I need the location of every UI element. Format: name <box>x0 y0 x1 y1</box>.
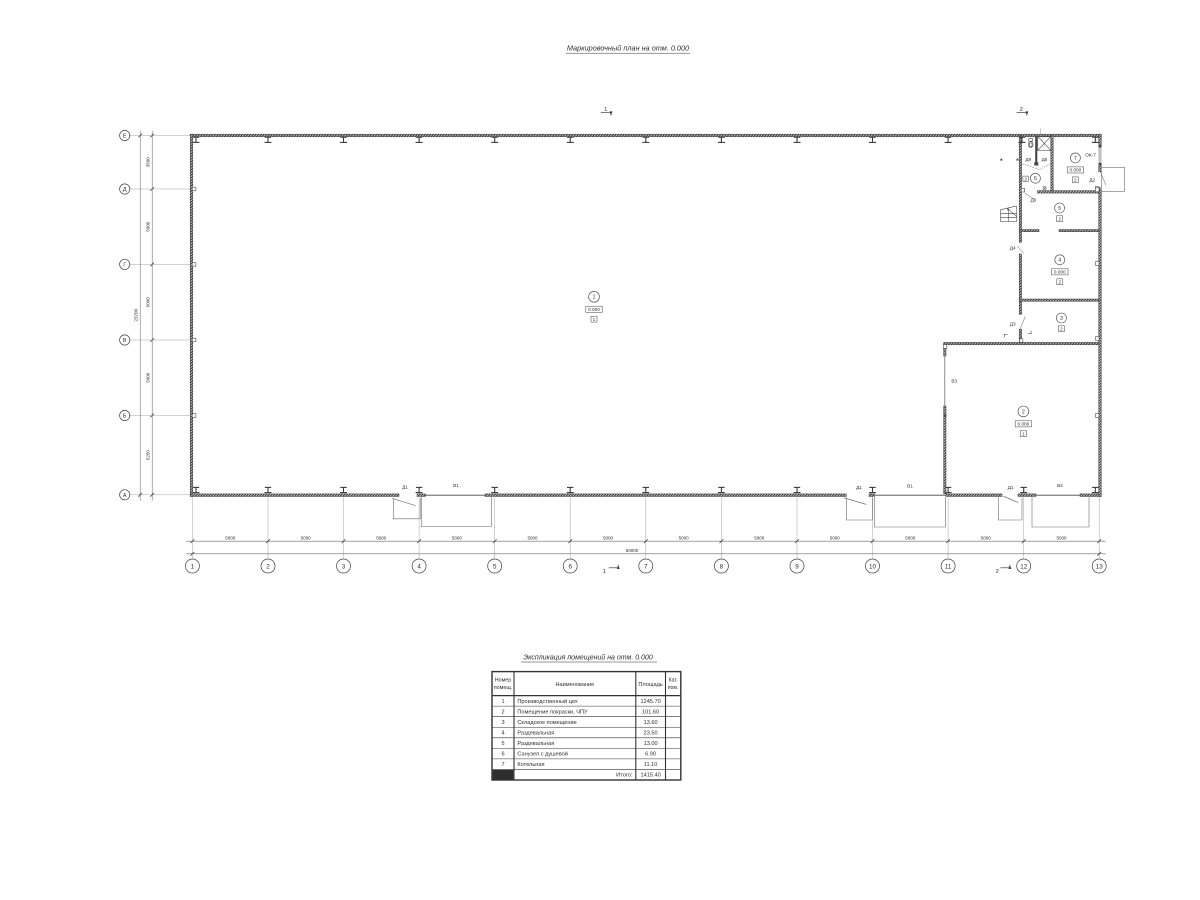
svg-text:60000: 60000 <box>626 548 639 553</box>
svg-text:5000: 5000 <box>145 221 150 232</box>
svg-text:Д8: Д8 <box>1042 157 1048 162</box>
svg-text:5000: 5000 <box>225 535 236 540</box>
svg-text:Итого:: Итого: <box>616 773 633 779</box>
svg-text:Раздевальная: Раздевальная <box>517 731 554 737</box>
svg-text:Д: Д <box>123 187 127 193</box>
svg-text:1245.70: 1245.70 <box>640 699 660 705</box>
svg-text:3500: 3500 <box>145 157 150 168</box>
svg-text:10: 10 <box>869 563 877 570</box>
svg-text:Котельная: Котельная <box>517 762 544 768</box>
svg-text:В2: В2 <box>1057 483 1063 488</box>
svg-text:1: 1 <box>593 295 596 301</box>
svg-text:Номер: Номер <box>495 678 512 684</box>
svg-text:1: 1 <box>603 569 606 575</box>
svg-text:5000: 5000 <box>145 297 150 308</box>
svg-text:2: 2 <box>1074 178 1077 183</box>
svg-text:2: 2 <box>1058 216 1061 221</box>
svg-text:5000: 5000 <box>452 535 463 540</box>
svg-text:4: 4 <box>417 563 421 570</box>
svg-text:13.60: 13.60 <box>644 720 658 726</box>
svg-text:1415.40: 1415.40 <box>640 773 660 779</box>
svg-text:5000: 5000 <box>679 535 690 540</box>
svg-text:Складское помещение: Складское помещение <box>517 720 576 726</box>
svg-text:2: 2 <box>996 569 999 575</box>
svg-text:1: 1 <box>501 699 504 705</box>
svg-text:6: 6 <box>1034 176 1037 182</box>
svg-text:5000: 5000 <box>830 535 841 540</box>
svg-text:3: 3 <box>342 563 346 570</box>
svg-text:23.50: 23.50 <box>644 731 658 737</box>
svg-text:помещ.: помещ. <box>494 685 513 691</box>
svg-text:Е: Е <box>123 134 127 140</box>
svg-text:Кат.: Кат. <box>669 678 678 684</box>
svg-text:Санузел с душевой: Санузел с душевой <box>517 751 568 758</box>
svg-text:5000: 5000 <box>981 535 992 540</box>
svg-text:5000: 5000 <box>1056 535 1067 540</box>
svg-text:1: 1 <box>604 107 607 113</box>
svg-text:2: 2 <box>1060 326 1063 331</box>
svg-text:Д1: Д1 <box>402 485 408 490</box>
svg-text:Наименование: Наименование <box>556 682 595 688</box>
svg-text:Б: Б <box>123 414 127 420</box>
svg-text:6.90: 6.90 <box>645 752 656 758</box>
svg-text:6: 6 <box>501 752 504 758</box>
svg-text:0.000: 0.000 <box>1018 421 1030 426</box>
svg-text:2: 2 <box>1020 107 1023 113</box>
svg-text:ОК-7: ОК-7 <box>1085 153 1096 159</box>
svg-text:Маркировочный план на отм. 0.0: Маркировочный план на отм. 0.000 <box>567 44 689 53</box>
svg-text:11: 11 <box>945 563 952 570</box>
svg-text:1: 1 <box>593 317 596 322</box>
svg-text:7: 7 <box>644 563 648 570</box>
svg-text:23700: 23700 <box>133 308 138 321</box>
svg-text:Д4: Д4 <box>1010 245 1016 250</box>
svg-text:Г: Г <box>123 262 126 268</box>
svg-text:5000: 5000 <box>603 535 614 540</box>
svg-text:8: 8 <box>720 563 724 570</box>
svg-text:2: 2 <box>1059 279 1062 284</box>
svg-text:5000: 5000 <box>145 372 150 383</box>
svg-text:7: 7 <box>1074 156 1077 162</box>
svg-text:В3: В3 <box>951 378 957 383</box>
svg-text:5000: 5000 <box>905 535 916 540</box>
svg-text:В1: В1 <box>907 483 913 488</box>
svg-text:11.10: 11.10 <box>644 762 658 768</box>
svg-text:Д6: Д6 <box>1031 198 1037 203</box>
svg-text:2: 2 <box>501 709 504 715</box>
svg-text:4: 4 <box>1058 258 1061 264</box>
svg-text:Д9: Д9 <box>1025 157 1031 162</box>
svg-text:В1: В1 <box>453 483 459 488</box>
svg-text:5: 5 <box>493 563 497 570</box>
svg-text:12: 12 <box>1020 563 1028 570</box>
svg-text:0.000: 0.000 <box>1070 168 1082 173</box>
svg-text:5000: 5000 <box>754 535 765 540</box>
svg-text:Д1: Д1 <box>1008 485 1014 490</box>
svg-text:13.00: 13.00 <box>644 741 658 747</box>
svg-text:5: 5 <box>501 741 504 747</box>
svg-text:5000: 5000 <box>301 535 312 540</box>
svg-text:1: 1 <box>1022 431 1025 436</box>
svg-text:Д3: Д3 <box>1010 322 1016 327</box>
svg-text:7: 7 <box>501 762 504 768</box>
svg-text:Д1: Д1 <box>856 485 862 490</box>
svg-text:6: 6 <box>568 563 572 570</box>
svg-text:5: 5 <box>1058 206 1061 212</box>
svg-text:3: 3 <box>501 720 504 726</box>
svg-text:В: В <box>123 338 127 344</box>
svg-text:5000: 5000 <box>527 535 538 540</box>
svg-text:0.000: 0.000 <box>588 307 600 312</box>
svg-text:4: 4 <box>501 731 504 737</box>
svg-text:5000: 5000 <box>376 535 387 540</box>
svg-text:А: А <box>123 493 127 499</box>
svg-text:5250: 5250 <box>145 450 150 461</box>
svg-text:0.000: 0.000 <box>1054 269 1066 274</box>
svg-text:101.60: 101.60 <box>642 709 659 715</box>
svg-text:1: 1 <box>191 563 195 570</box>
svg-text:Производственный цех: Производственный цех <box>517 698 577 705</box>
svg-text:Площадь: Площадь <box>638 682 662 688</box>
svg-text:9: 9 <box>795 563 799 570</box>
svg-text:2: 2 <box>1022 409 1025 415</box>
svg-text:Помещение покраски, ЧПУ: Помещение покраски, ЧПУ <box>517 709 588 715</box>
svg-text:2: 2 <box>1024 176 1027 181</box>
svg-text:Экспликация помещений на отм.: Экспликация помещений на отм. 0.000 <box>523 653 653 661</box>
svg-text:13: 13 <box>1096 563 1104 570</box>
svg-text:пом.: пом. <box>668 685 679 691</box>
svg-text:Раздевальная: Раздевальная <box>517 741 554 747</box>
svg-text:Д2: Д2 <box>1089 177 1095 183</box>
svg-text:2: 2 <box>266 563 270 570</box>
svg-text:3: 3 <box>1060 316 1063 322</box>
